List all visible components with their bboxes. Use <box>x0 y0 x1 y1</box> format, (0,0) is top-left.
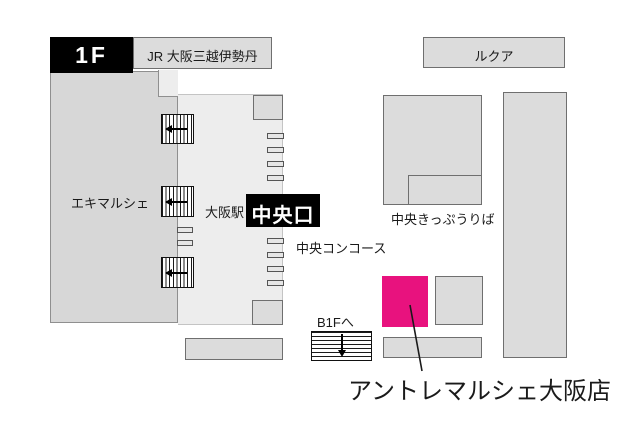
east-building <box>503 92 567 358</box>
wall-tick <box>267 175 284 181</box>
b1f-label: B1Fへ <box>317 312 354 331</box>
floor-badge-label: 1F <box>50 42 133 69</box>
ticket-office-building <box>383 95 482 205</box>
stairs-b1f-icon <box>311 331 372 361</box>
lucua-label: ルクア <box>424 46 564 65</box>
stairs-west-top-icon <box>161 114 194 144</box>
station-name-label: 大阪駅 <box>205 202 244 221</box>
corridor-bottom-structure <box>252 300 283 325</box>
central-exit-badge: 中央口 <box>246 194 320 227</box>
down-arrow-icon <box>335 334 349 360</box>
left-arrow-icon <box>165 125 188 133</box>
wall-tick <box>267 133 284 139</box>
ekimarche-notch <box>158 70 178 97</box>
jr-mitsukoshi-label: JR 大阪三越伊勢丹 <box>134 46 271 65</box>
ticket-office-counter <box>408 175 481 204</box>
stairs-west-middle-icon <box>161 186 194 217</box>
lucua-building: ルクア <box>423 37 565 68</box>
wall-tick <box>177 227 193 233</box>
store-name-label: アントレマルシェ大阪店 <box>348 371 611 406</box>
ticket-office-label: 中央きっぷうりば <box>391 209 494 228</box>
wall-tick <box>267 238 284 244</box>
wall-tick <box>267 252 284 258</box>
south-structure-left <box>185 338 283 360</box>
floor-badge: 1F <box>50 37 133 73</box>
central-exit-label: 中央口 <box>246 199 320 228</box>
ekimarche-label: エキマルシェ <box>60 193 160 212</box>
corridor-top-structure <box>253 95 283 120</box>
wall-tick <box>177 240 193 246</box>
wall-tick <box>267 161 284 167</box>
left-arrow-icon <box>165 269 188 277</box>
left-arrow-icon <box>165 198 188 206</box>
store-adjacent-structure <box>435 276 483 325</box>
wall-tick <box>267 266 284 272</box>
wall-tick <box>267 147 284 153</box>
store-pointer-line <box>398 297 428 377</box>
station-floor-map: 1F JR 大阪三越伊勢丹 ルクア エキマルシェ 大阪駅 中央口 中央コンコース… <box>0 0 640 421</box>
stairs-west-bottom-icon <box>161 257 194 288</box>
jr-mitsukoshi-building: JR 大阪三越伊勢丹 <box>133 37 272 69</box>
central-concourse-label: 中央コンコース <box>296 238 386 257</box>
wall-tick <box>267 280 284 286</box>
